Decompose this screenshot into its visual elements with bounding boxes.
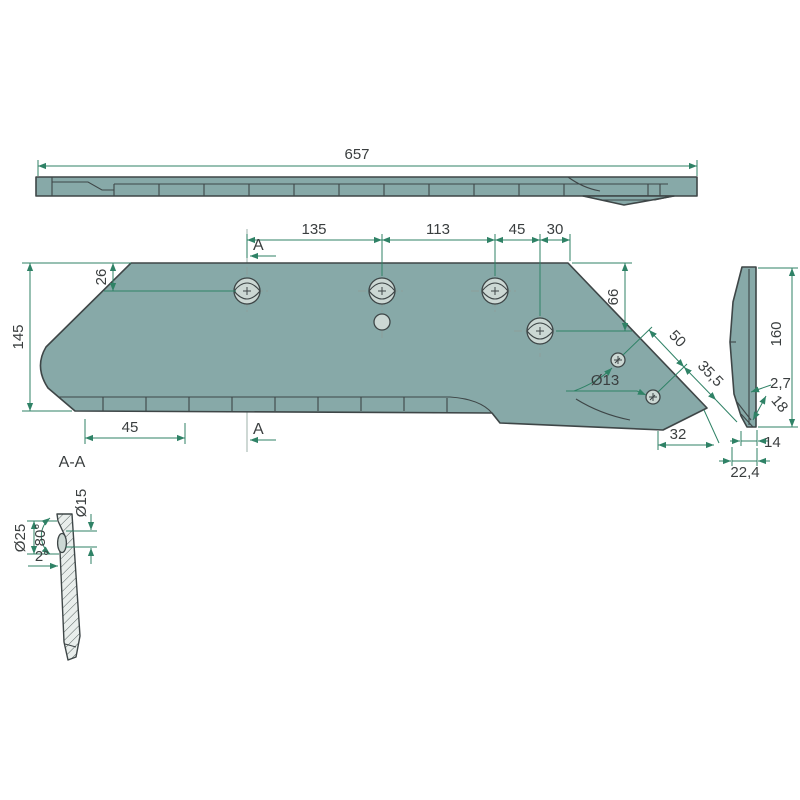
dim-label-wing-50: 50 — [665, 327, 689, 351]
section-marker-bottom: A — [253, 421, 264, 438]
dim-label-angle-80: 80° — [32, 524, 49, 547]
dim-label-wing-hole-66: 66 — [605, 289, 622, 306]
dim-label-serration-45: 45 — [122, 419, 139, 436]
dim-label-angle-2: 2° — [35, 548, 49, 565]
dim-label-width-224: 22,4 — [730, 464, 759, 481]
dim-label-flat-14: 14 — [764, 434, 781, 451]
front-view: 135 113 45 30 26 145 45 66 50 35,5 — [10, 221, 737, 452]
plain-hole — [374, 314, 390, 330]
dim-label-height-145: 145 — [10, 324, 27, 349]
side-view: 160 2,7 18 14 22,4 — [719, 267, 798, 481]
dim-label-offset-30: 30 — [547, 221, 564, 238]
dim-label-wing-355: 35,5 — [694, 357, 727, 390]
section-title: A-A — [59, 454, 86, 471]
bolt-head-seat — [58, 534, 67, 553]
dim-label-dia-13: Ø13 — [591, 372, 619, 389]
section-view: A-A Ø15 Ø25 80° 2° — [12, 454, 97, 660]
plow-share-drawing: 657 — [0, 0, 800, 800]
side-view-body — [730, 267, 756, 427]
dim-label-overall-length: 657 — [344, 146, 369, 163]
top-view: 657 — [36, 146, 697, 205]
dim-label-dia-15: Ø15 — [73, 489, 90, 517]
dim-label-side-160: 160 — [768, 321, 785, 346]
dim-label-edge-27: 2,7 — [770, 375, 791, 392]
dim-label-tip-32: 32 — [670, 426, 687, 443]
top-view-body — [36, 177, 697, 196]
dim-label-spacing-135: 135 — [301, 221, 326, 238]
technical-drawing-page: 657 — [0, 0, 800, 800]
dim-label-bevel-18: 18 — [768, 392, 792, 416]
dim-label-spacing-45: 45 — [509, 221, 526, 238]
dim-label-hole-offset-26: 26 — [93, 269, 110, 286]
section-marker-top: A — [253, 237, 264, 254]
dim-label-dia-25: Ø25 — [12, 524, 29, 552]
dim-label-spacing-113: 113 — [426, 221, 450, 238]
